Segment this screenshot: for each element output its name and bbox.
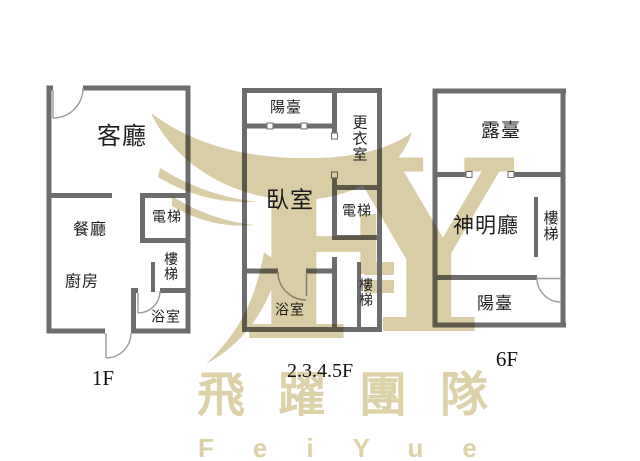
monogram-y: Y (339, 109, 515, 388)
floor-label-1f: 1F (92, 366, 114, 391)
floor-label-2345f: 2.3.4.5F (287, 360, 353, 383)
floorplan-image: 客廳 餐廳 廚房 電梯 樓梯 浴室 陽臺 更衣室 臥室 電梯 樓梯 浴室 露臺 … (0, 0, 640, 461)
watermark-logo: F Y (0, 0, 640, 461)
floor-label-6f: 6F (496, 347, 518, 372)
